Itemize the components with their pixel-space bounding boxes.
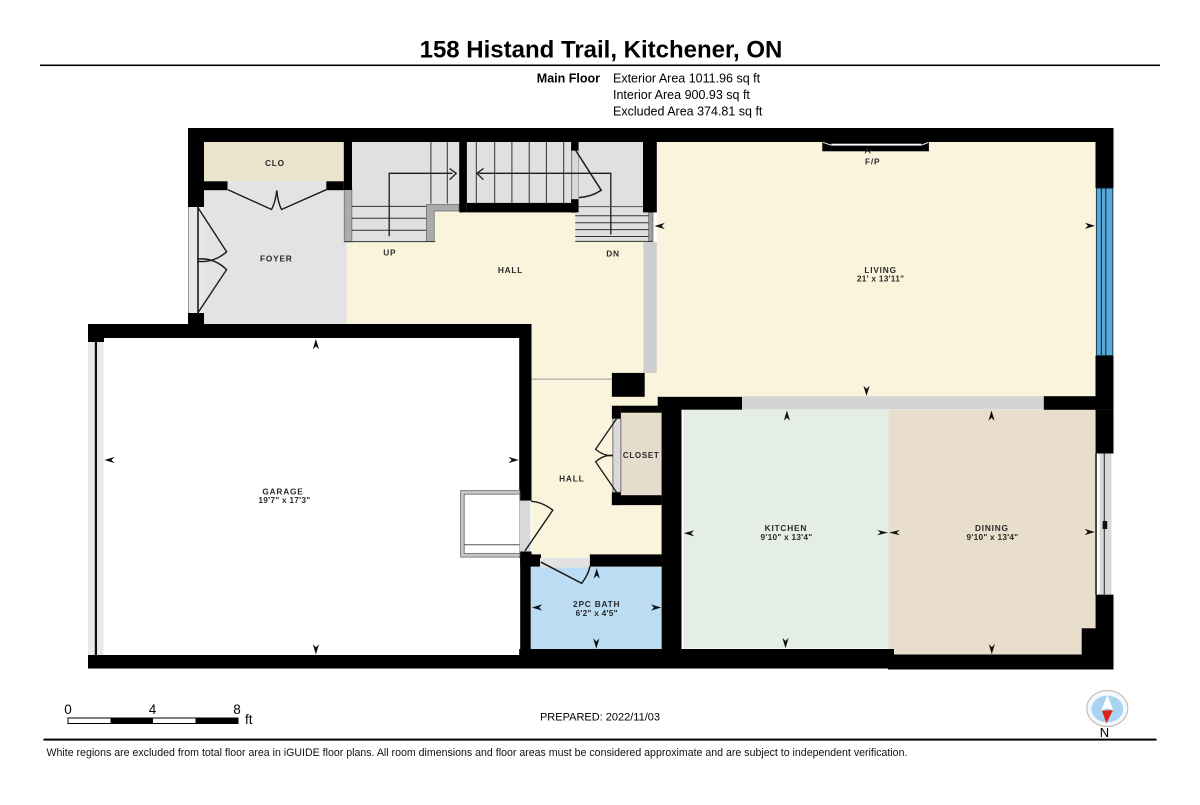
svg-text:9'10" x 13'4": 9'10" x 13'4" [761, 532, 813, 542]
svg-text:PREPARED: 2022/11/03: PREPARED: 2022/11/03 [540, 712, 660, 724]
svg-text:F/P: F/P [865, 156, 880, 166]
svg-text:DN: DN [606, 248, 620, 258]
svg-text:HALL: HALL [498, 265, 523, 275]
svg-text:9'10" x 13'4": 9'10" x 13'4" [967, 532, 1019, 542]
svg-text:UP: UP [383, 248, 396, 258]
svg-text:CLO: CLO [265, 158, 285, 168]
svg-text:21' x 13'11": 21' x 13'11" [857, 274, 904, 284]
svg-text:158 Histand Trail, Kitchener,: 158 Histand Trail, Kitchener, ON [420, 37, 783, 64]
svg-text:Main Floor: Main Floor [537, 72, 600, 86]
svg-text:Interior Area 900.93 sq ft: Interior Area 900.93 sq ft [613, 88, 750, 102]
svg-text:Exterior Area 1011.96 sq ft: Exterior Area 1011.96 sq ft [613, 72, 761, 86]
svg-text:8: 8 [233, 702, 241, 717]
svg-text:6'2" x 4'5": 6'2" x 4'5" [576, 608, 618, 618]
svg-text:HALL: HALL [559, 474, 584, 484]
svg-text:Excluded Area 374.81 sq ft: Excluded Area 374.81 sq ft [613, 105, 763, 119]
svg-text:N: N [1100, 725, 1109, 740]
svg-text:White regions are excluded fro: White regions are excluded from total fl… [47, 747, 908, 759]
svg-text:0: 0 [64, 702, 72, 717]
svg-text:4: 4 [149, 702, 157, 717]
svg-text:19'7" x 17'3": 19'7" x 17'3" [258, 495, 310, 505]
svg-text:FOYER: FOYER [260, 254, 293, 264]
svg-text:CLOSET: CLOSET [623, 451, 660, 460]
svg-text:ft: ft [245, 712, 253, 727]
